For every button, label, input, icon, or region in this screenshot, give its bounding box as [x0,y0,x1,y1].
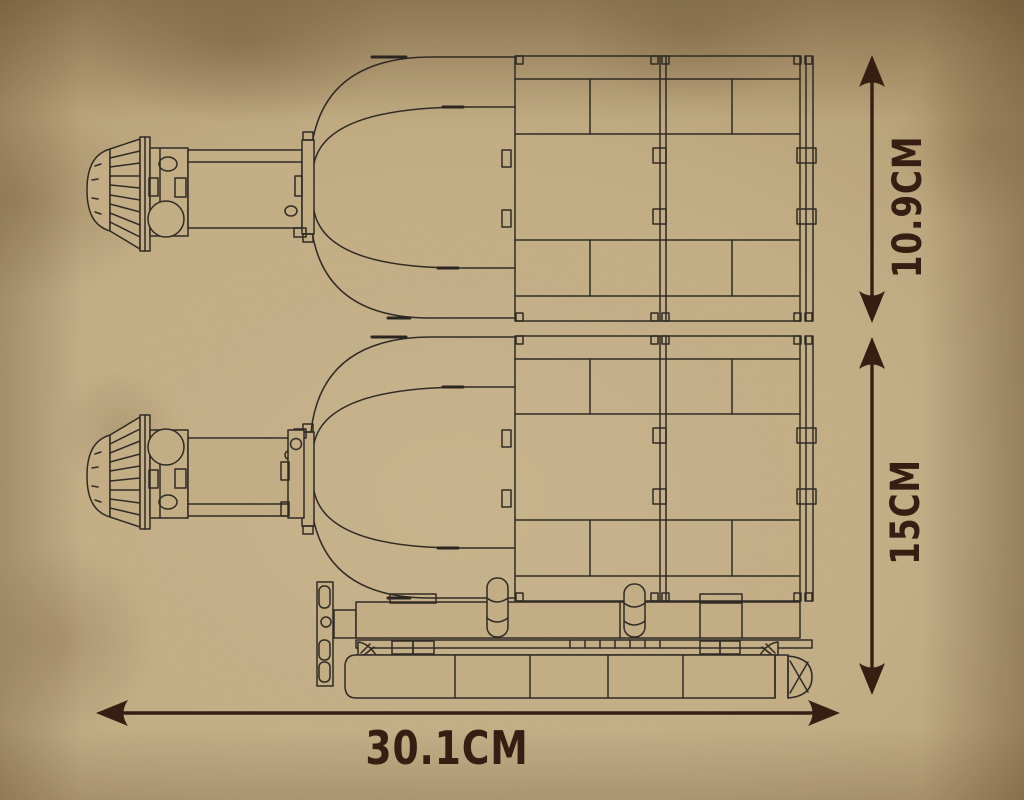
hull-and-panel-upper [310,56,816,321]
hull-and-panel-lower [310,336,816,601]
dimension-arrow-total-height [859,337,885,695]
dimension-arrow-upper-height [859,55,885,323]
total-height-dimension-label: 15CM [883,459,929,565]
blueprint-page: 10.9CM 15CM 30.1CM [0,0,1024,800]
searchlight-upper [87,132,314,251]
blueprint-line-art [0,0,1024,800]
upper-height-dimension-label: 10.9CM [885,136,931,279]
view-upper [87,56,816,321]
searchlight-lower [87,415,314,534]
view-lower [87,336,816,698]
length-dimension-label: 30.1CM [365,721,528,775]
